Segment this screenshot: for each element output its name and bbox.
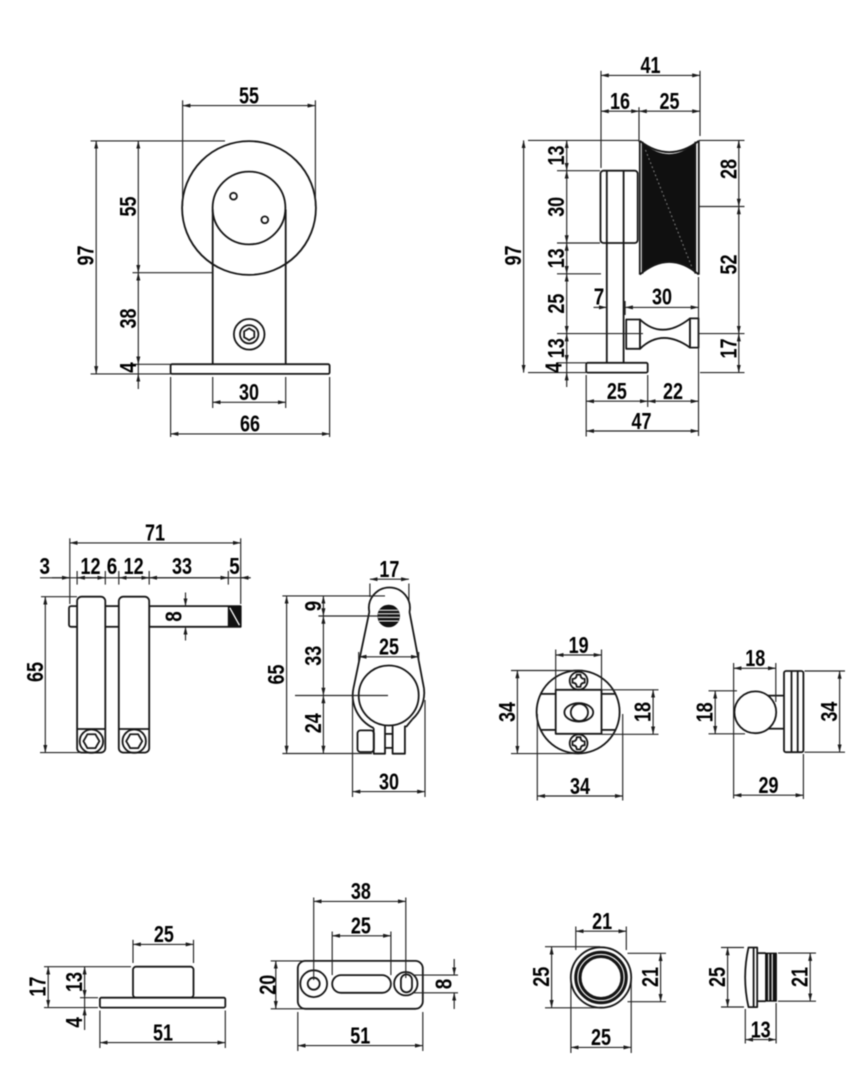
svg-text:55: 55: [239, 82, 259, 108]
svg-text:34: 34: [570, 773, 590, 799]
svg-text:30: 30: [239, 379, 259, 405]
svg-text:21: 21: [592, 908, 612, 934]
svg-text:25: 25: [379, 634, 399, 660]
svg-text:18: 18: [630, 702, 656, 722]
svg-text:25: 25: [154, 921, 174, 947]
svg-text:13: 13: [61, 972, 87, 992]
svg-text:55: 55: [115, 196, 141, 216]
svg-text:25: 25: [591, 1024, 611, 1050]
svg-text:28: 28: [715, 159, 741, 179]
svg-text:33: 33: [300, 646, 326, 666]
svg-text:41: 41: [641, 52, 661, 78]
svg-text:34: 34: [494, 702, 520, 722]
svg-text:18: 18: [745, 645, 765, 671]
svg-text:4: 4: [115, 362, 141, 373]
svg-text:18: 18: [692, 702, 718, 722]
svg-text:13: 13: [543, 338, 569, 358]
svg-text:24: 24: [300, 713, 326, 733]
svg-text:20: 20: [254, 975, 280, 995]
svg-text:65: 65: [22, 662, 48, 682]
svg-text:65: 65: [263, 664, 289, 684]
svg-text:38: 38: [351, 878, 371, 904]
svg-text:52: 52: [715, 255, 741, 275]
svg-text:17: 17: [25, 977, 51, 997]
svg-text:16: 16: [610, 88, 630, 114]
svg-text:7: 7: [594, 284, 605, 310]
svg-text:8: 8: [431, 979, 457, 990]
svg-text:71: 71: [145, 520, 165, 546]
svg-text:38: 38: [115, 308, 141, 328]
svg-text:19: 19: [569, 632, 589, 658]
svg-text:29: 29: [759, 772, 779, 798]
svg-text:97: 97: [500, 246, 526, 266]
svg-text:9: 9: [300, 601, 326, 612]
svg-text:25: 25: [351, 913, 371, 939]
svg-text:21: 21: [637, 967, 663, 987]
svg-text:4: 4: [541, 362, 567, 373]
svg-text:25: 25: [543, 293, 569, 313]
svg-text:25: 25: [528, 967, 554, 987]
svg-text:21: 21: [787, 967, 813, 987]
svg-text:12: 12: [81, 553, 101, 579]
svg-text:25: 25: [607, 378, 627, 404]
svg-text:30: 30: [379, 768, 399, 794]
svg-text:66: 66: [240, 411, 260, 437]
svg-text:25: 25: [660, 88, 680, 114]
svg-text:25: 25: [704, 967, 730, 987]
svg-text:51: 51: [350, 1022, 370, 1048]
svg-text:30: 30: [652, 284, 672, 310]
svg-text:3: 3: [40, 553, 51, 579]
svg-text:33: 33: [172, 553, 192, 579]
svg-text:13: 13: [751, 1016, 771, 1042]
svg-text:17: 17: [379, 556, 399, 582]
svg-text:17: 17: [715, 339, 741, 359]
svg-text:22: 22: [663, 378, 683, 404]
svg-text:6: 6: [107, 553, 118, 579]
svg-text:47: 47: [632, 408, 652, 434]
svg-text:12: 12: [124, 553, 144, 579]
svg-text:8: 8: [161, 611, 187, 622]
svg-text:97: 97: [73, 246, 99, 266]
svg-text:51: 51: [153, 1019, 173, 1045]
svg-text:13: 13: [543, 146, 569, 166]
svg-text:13: 13: [543, 248, 569, 268]
svg-text:4: 4: [61, 1017, 87, 1028]
svg-text:5: 5: [229, 553, 240, 579]
svg-text:30: 30: [543, 197, 569, 217]
svg-text:34: 34: [816, 701, 842, 721]
